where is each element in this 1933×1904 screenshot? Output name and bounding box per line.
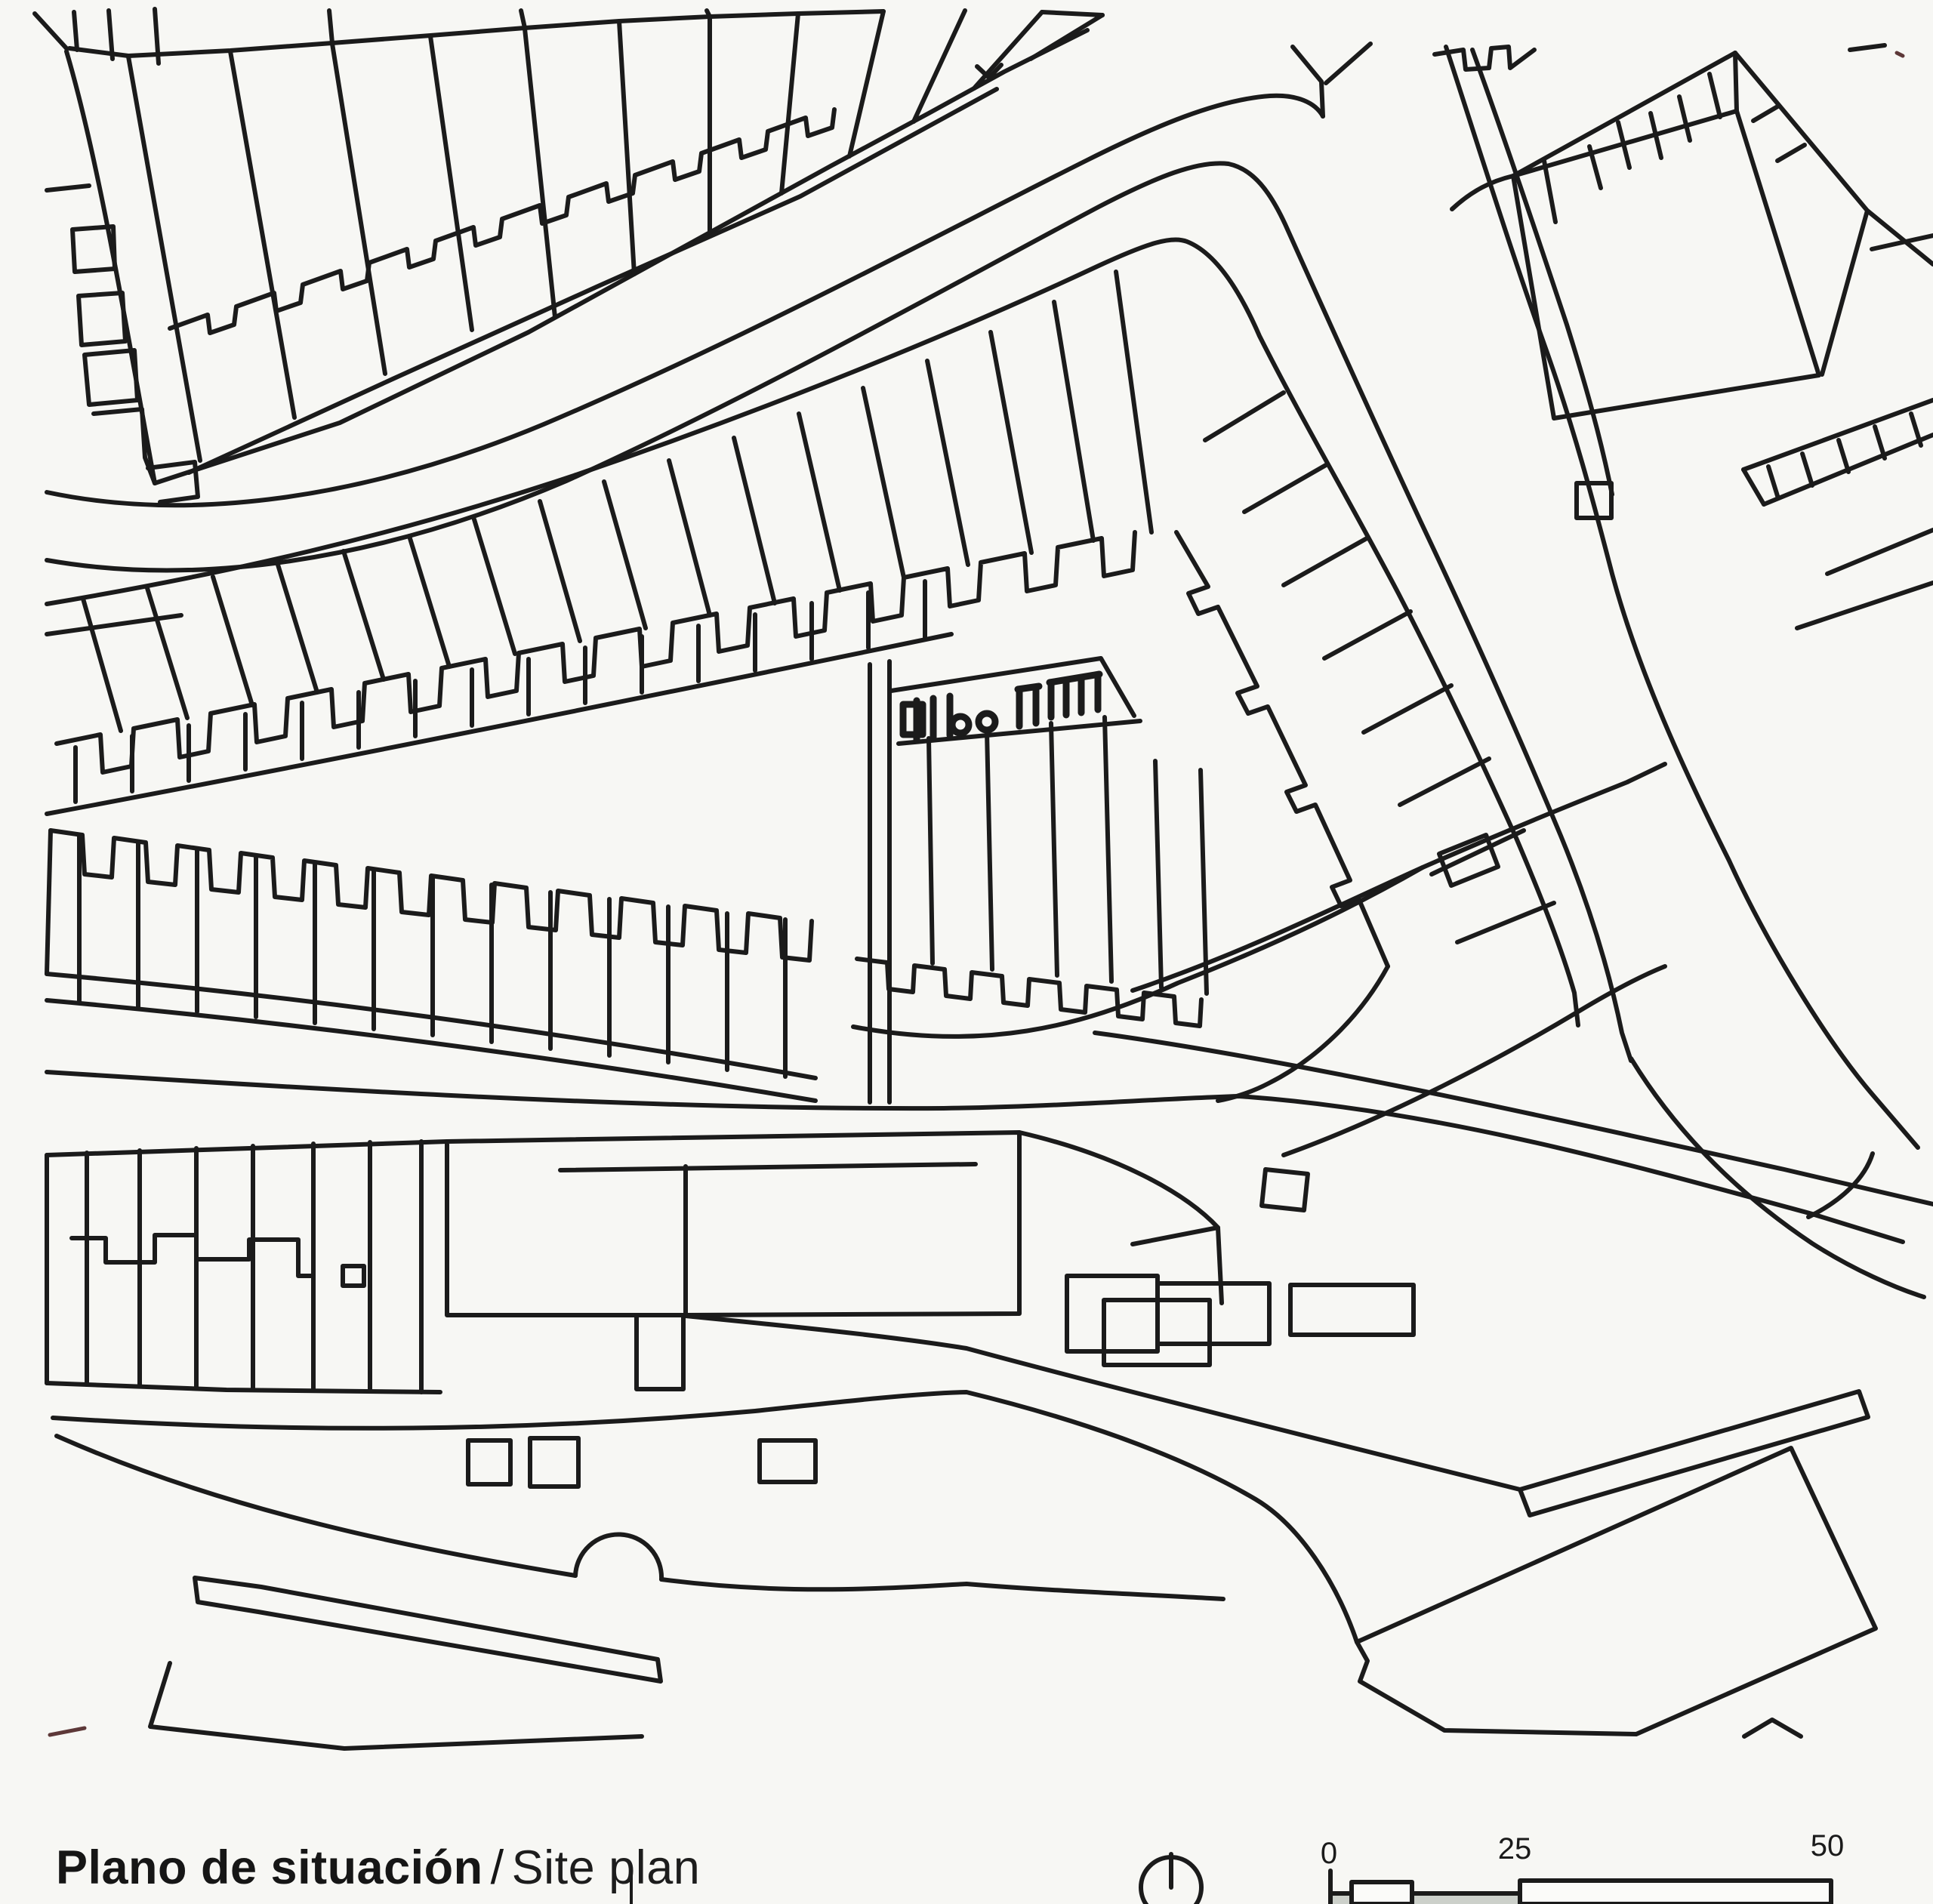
caption-primary: Plano de situación [56,1841,483,1894]
plan-strokes: 0 25 50 [35,9,1933,1904]
block-right-edge [1743,400,1933,628]
scan-marks [1850,45,1903,56]
band-corner-wrap [1133,393,1665,1155]
block-top-right [1452,53,1933,418]
caption-separator: / [483,1841,512,1894]
street-lower [47,1058,1924,1297]
scale-label-0: 0 [1321,1837,1337,1870]
scanned-page: { "page": { "kind": "architectural site … [0,0,1933,1904]
shore-and-pier [50,1436,1223,1748]
street-y-junction [1293,44,1370,116]
scale-label-25: 25 [1498,1832,1532,1865]
street-diagonal-east [1435,47,1918,1148]
scale-label-50: 50 [1811,1829,1845,1862]
caption: Plano de situación/Site plan [56,1841,700,1895]
scale-bar: 0 25 50 [1321,1829,1844,1904]
north-arrow-icon [1141,1854,1201,1904]
building-bottom-right [1357,1391,1876,1736]
site-plan-drawing: 0 25 50 [0,0,1933,1904]
caption-secondary: Site plan [512,1841,701,1894]
band-lower-left [47,830,815,1101]
